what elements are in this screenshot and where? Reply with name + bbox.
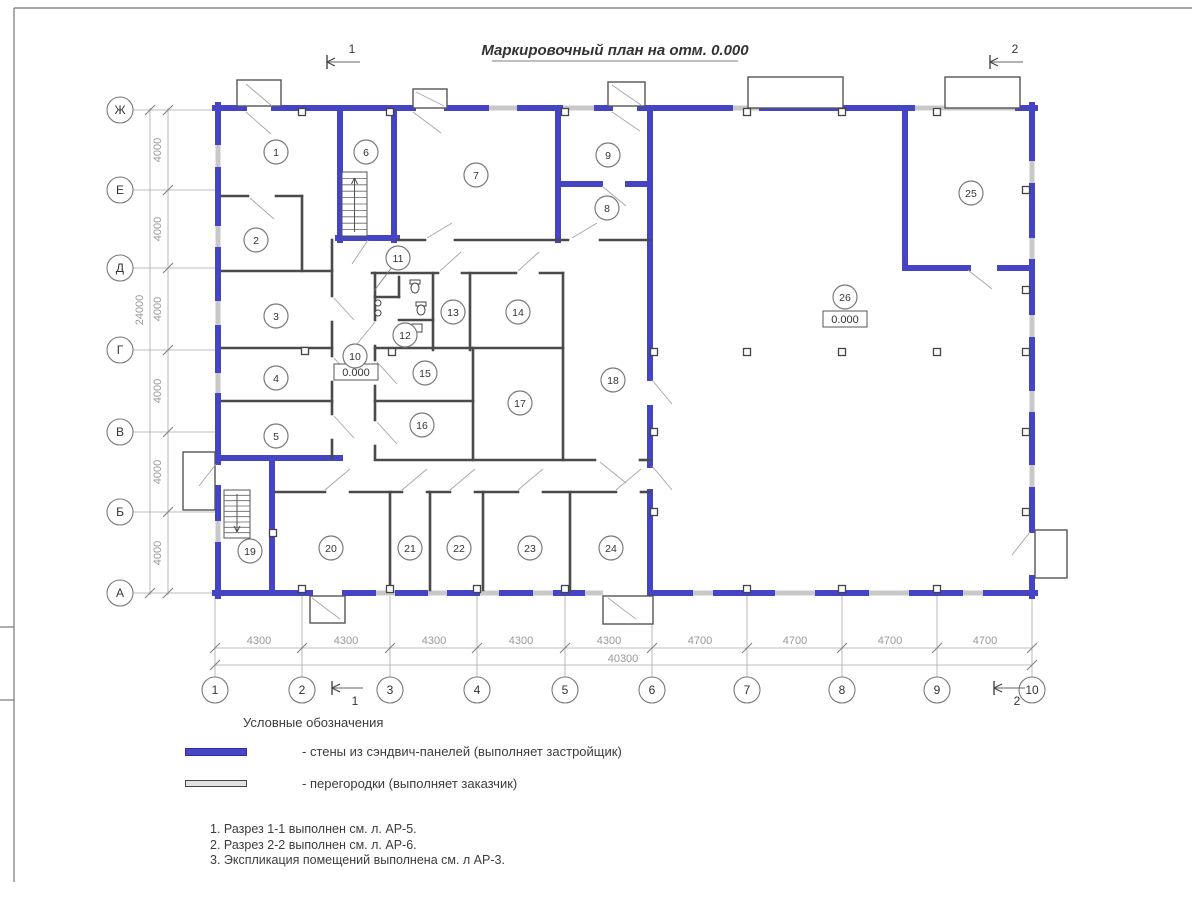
- svg-text:4000: 4000: [152, 217, 164, 241]
- svg-text:18: 18: [607, 375, 619, 387]
- room-11-leader: [374, 267, 392, 291]
- legend: Условные обозначения - стены из сэндвич-…: [185, 715, 785, 808]
- svg-text:13: 13: [447, 307, 459, 319]
- svg-text:5: 5: [562, 683, 569, 697]
- svg-text:4000: 4000: [152, 460, 164, 484]
- svg-text:4000: 4000: [152, 138, 164, 162]
- svg-text:2: 2: [299, 683, 306, 697]
- svg-text:4000: 4000: [152, 541, 164, 565]
- legend-item-label: - стены из сэндвич-панелей (выполняет за…: [302, 744, 622, 759]
- note-line: 3. Экспликация помещений выполнена см. л…: [210, 853, 505, 869]
- notes-list: 1. Разрез 1-1 выполнен см. л. АР-5.2. Ра…: [210, 822, 505, 869]
- sandwich-panel-walls: [215, 105, 1035, 596]
- svg-text:40300: 40300: [608, 653, 639, 665]
- svg-text:5: 5: [273, 431, 279, 443]
- legend-item: - стены из сэндвич-панелей (выполняет за…: [185, 744, 785, 759]
- svg-text:3: 3: [273, 311, 279, 323]
- svg-text:4300: 4300: [247, 635, 271, 647]
- svg-text:9: 9: [605, 150, 611, 162]
- legend-item: - перегородки (выполняет заказчик): [185, 776, 785, 791]
- svg-text:23: 23: [524, 543, 536, 555]
- svg-text:4: 4: [273, 373, 279, 385]
- svg-text:15: 15: [419, 368, 431, 380]
- svg-text:2: 2: [253, 235, 259, 247]
- svg-text:8: 8: [839, 683, 846, 697]
- legend-item-label: - перегородки (выполняет заказчик): [302, 776, 517, 791]
- svg-text:6: 6: [649, 683, 656, 697]
- svg-text:Д: Д: [116, 261, 124, 275]
- svg-text:1: 1: [349, 42, 356, 56]
- svg-text:4300: 4300: [334, 635, 358, 647]
- legend-heading: Условные обозначения: [243, 715, 785, 730]
- note-line: 2. Разрез 2-2 выполнен см. л. АР-6.: [210, 838, 505, 854]
- svg-text:21: 21: [404, 543, 416, 555]
- svg-text:4300: 4300: [509, 635, 533, 647]
- svg-text:9: 9: [934, 683, 941, 697]
- svg-text:В: В: [116, 425, 124, 439]
- svg-text:22: 22: [453, 543, 465, 555]
- svg-text:2: 2: [1014, 694, 1021, 708]
- svg-text:24: 24: [605, 543, 617, 555]
- svg-text:24000: 24000: [134, 295, 146, 326]
- svg-text:Е: Е: [116, 183, 124, 197]
- svg-text:0.000: 0.000: [342, 367, 370, 379]
- svg-text:7: 7: [473, 170, 479, 182]
- svg-text:4300: 4300: [597, 635, 621, 647]
- svg-text:4700: 4700: [783, 635, 807, 647]
- svg-text:12: 12: [399, 330, 411, 342]
- svg-text:0.000: 0.000: [831, 314, 859, 326]
- svg-text:1: 1: [352, 694, 359, 708]
- svg-text:2: 2: [1012, 42, 1019, 56]
- svg-text:Б: Б: [116, 505, 124, 519]
- sandwich-panel-swatch: [185, 748, 247, 756]
- svg-text:4700: 4700: [973, 635, 997, 647]
- svg-text:Г: Г: [117, 343, 124, 357]
- partition-swatch: [185, 780, 247, 787]
- svg-text:А: А: [116, 586, 124, 600]
- svg-text:14: 14: [512, 307, 524, 319]
- svg-text:4700: 4700: [878, 635, 902, 647]
- note-line: 1. Разрез 1-1 выполнен см. л. АР-5.: [210, 822, 505, 838]
- svg-text:3: 3: [387, 683, 394, 697]
- svg-text:7: 7: [744, 683, 751, 697]
- svg-text:10: 10: [349, 351, 361, 363]
- svg-text:11: 11: [393, 253, 404, 265]
- partition-walls: [222, 196, 650, 590]
- svg-text:8: 8: [604, 203, 610, 215]
- svg-text:1: 1: [212, 683, 219, 697]
- svg-text:4: 4: [474, 683, 481, 697]
- svg-text:6: 6: [363, 147, 369, 159]
- page-title: Маркировочный план на отм. 0.000: [481, 42, 749, 59]
- svg-text:10: 10: [1025, 683, 1039, 697]
- svg-text:4300: 4300: [422, 635, 446, 647]
- svg-text:1: 1: [273, 147, 279, 159]
- svg-text:17: 17: [514, 398, 526, 410]
- svg-text:25: 25: [965, 188, 977, 200]
- svg-text:26: 26: [839, 292, 851, 304]
- svg-text:19: 19: [244, 546, 256, 558]
- svg-text:4700: 4700: [688, 635, 712, 647]
- svg-text:4000: 4000: [152, 379, 164, 403]
- svg-text:16: 16: [416, 420, 428, 432]
- svg-text:20: 20: [325, 543, 337, 555]
- svg-text:Ж: Ж: [114, 103, 125, 117]
- drawing-sheet: 4000400040004000400040002400043004300430…: [0, 0, 1200, 900]
- legend-items: - стены из сэндвич-панелей (выполняет за…: [185, 744, 785, 791]
- svg-text:4000: 4000: [152, 297, 164, 321]
